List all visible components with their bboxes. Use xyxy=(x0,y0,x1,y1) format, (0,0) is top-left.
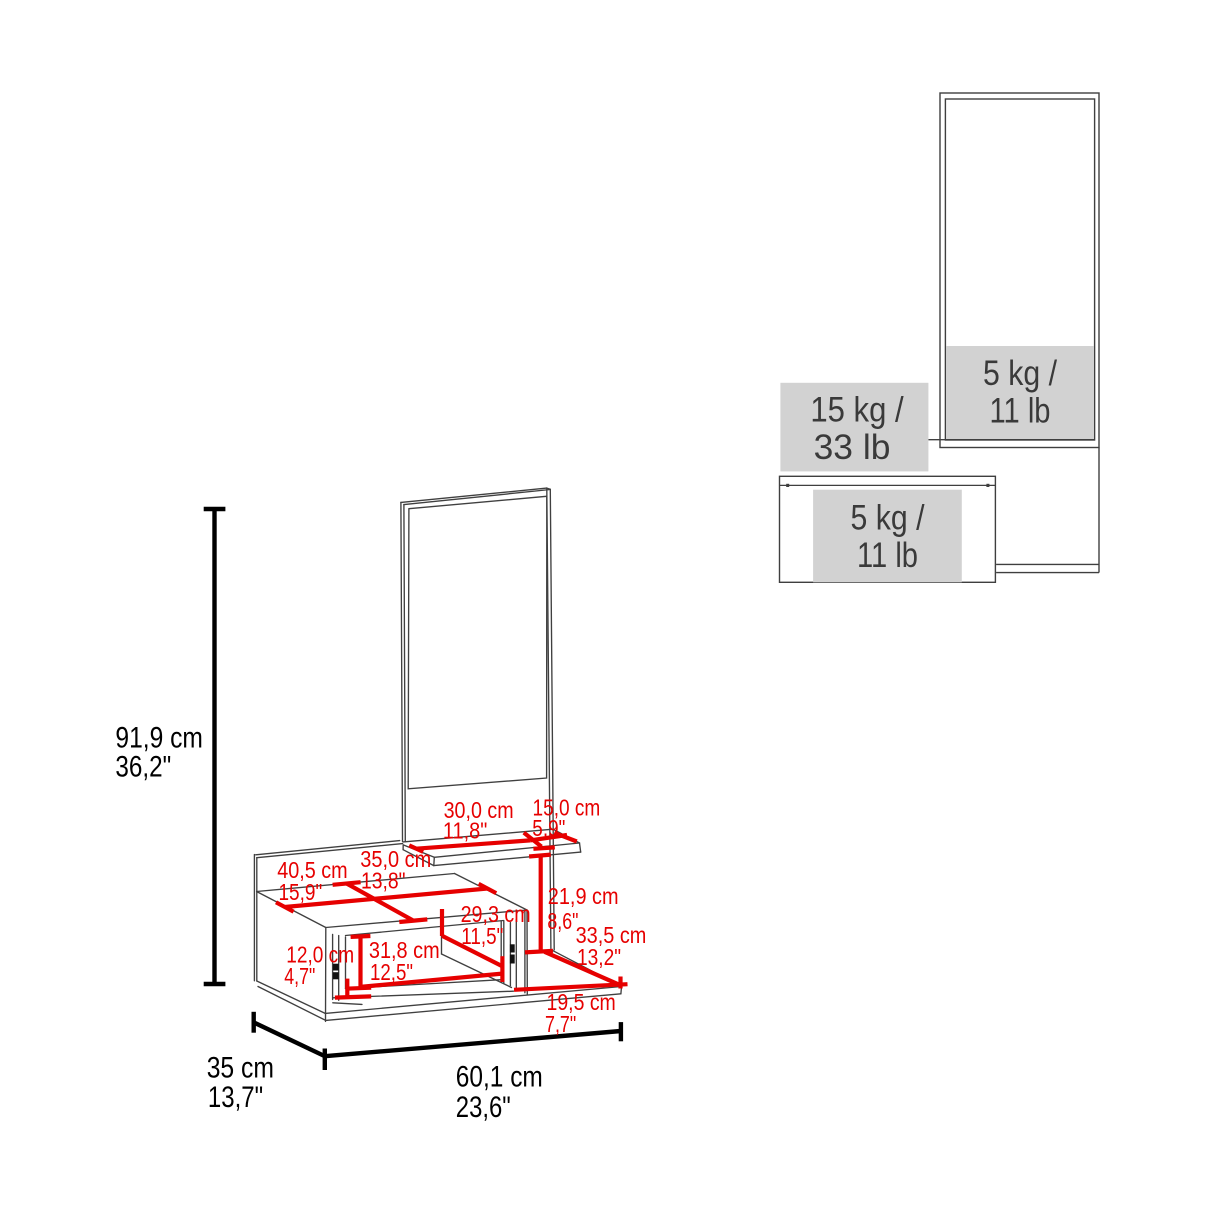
svg-text:33 lb: 33 lb xyxy=(814,427,891,467)
svg-text:15 kg /: 15 kg / xyxy=(810,390,903,430)
svg-text:35 cm: 35 cm xyxy=(207,1052,274,1085)
svg-text:5 kg /: 5 kg / xyxy=(851,497,925,537)
svg-text:5,9": 5,9" xyxy=(532,815,565,841)
svg-text:11 lb: 11 lb xyxy=(990,391,1051,431)
svg-text:8,6": 8,6" xyxy=(547,908,578,934)
svg-text:11,5": 11,5" xyxy=(461,923,503,949)
svg-text:13,7": 13,7" xyxy=(208,1081,263,1114)
svg-text:36,2": 36,2" xyxy=(115,751,171,784)
svg-text:21,9 cm: 21,9 cm xyxy=(548,883,619,909)
svg-text:23,6": 23,6" xyxy=(456,1091,511,1124)
svg-text:7,7": 7,7" xyxy=(545,1011,576,1037)
svg-text:13,8": 13,8" xyxy=(361,868,406,894)
svg-text:11,8": 11,8" xyxy=(443,818,488,844)
svg-text:91,9 cm: 91,9 cm xyxy=(115,721,202,754)
svg-text:60,1 cm: 60,1 cm xyxy=(456,1061,543,1094)
svg-text:4,7": 4,7" xyxy=(284,963,315,989)
svg-text:11 lb: 11 lb xyxy=(857,535,918,575)
svg-text:12,5": 12,5" xyxy=(370,959,413,985)
svg-text:15,9": 15,9" xyxy=(279,879,323,905)
svg-text:13,2": 13,2" xyxy=(577,944,621,970)
svg-text:5 kg /: 5 kg / xyxy=(983,353,1057,393)
